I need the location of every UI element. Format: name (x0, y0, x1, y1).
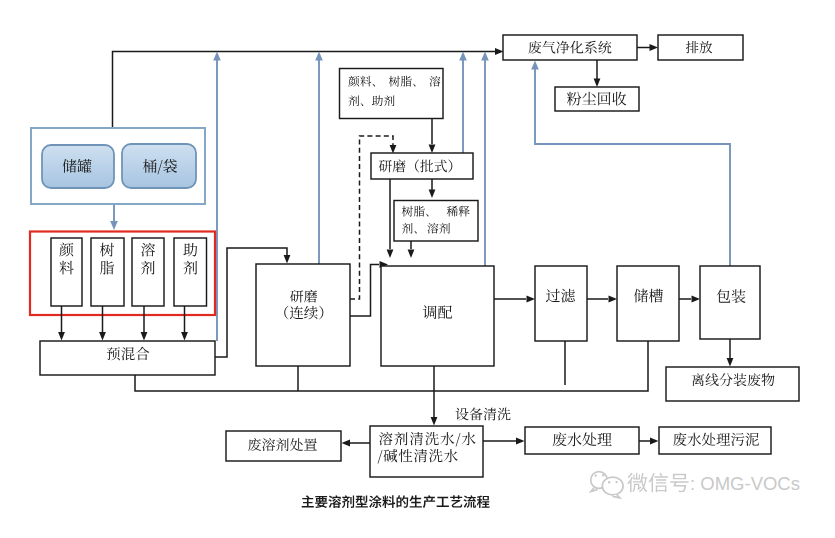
svg-text:: OMG-VOCs: : OMG-VOCs (690, 473, 800, 494)
